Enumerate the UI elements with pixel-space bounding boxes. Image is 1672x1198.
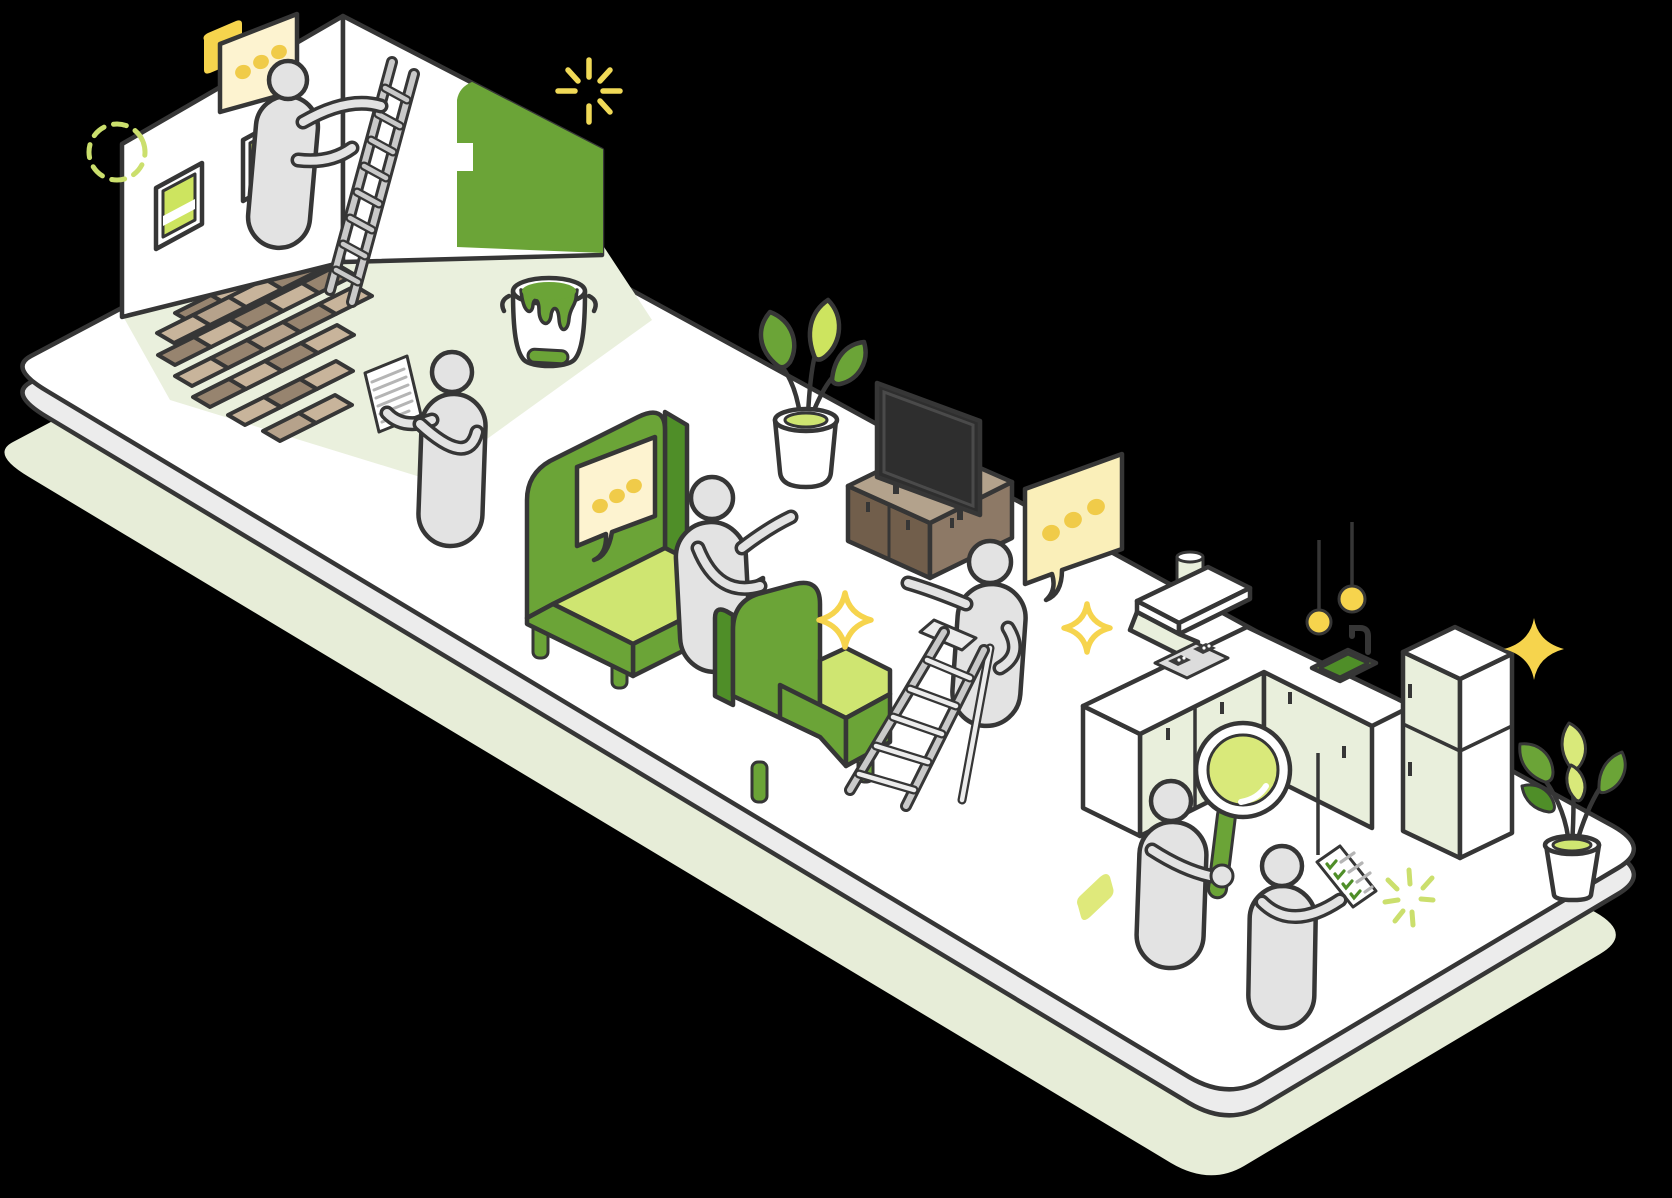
pendant-lamp bbox=[1339, 522, 1365, 612]
kitchen-sink bbox=[1312, 628, 1376, 681]
refrigerator bbox=[1403, 627, 1512, 858]
illustration-canvas: Home renovation and interior design acti… bbox=[0, 0, 1672, 1198]
illustration-stage: Home renovation and interior design acti… bbox=[0, 0, 1672, 1198]
pendant-lamp bbox=[1307, 540, 1331, 634]
leaf bbox=[761, 312, 794, 367]
leaf bbox=[810, 300, 839, 360]
leaf bbox=[1599, 752, 1625, 793]
leaf bbox=[832, 342, 866, 384]
faucet-icon bbox=[1352, 628, 1368, 652]
leaf bbox=[1567, 765, 1585, 801]
painted-wall-patch bbox=[458, 83, 602, 252]
leaf bbox=[1562, 723, 1585, 769]
sparkle-burst-icon bbox=[558, 60, 620, 122]
